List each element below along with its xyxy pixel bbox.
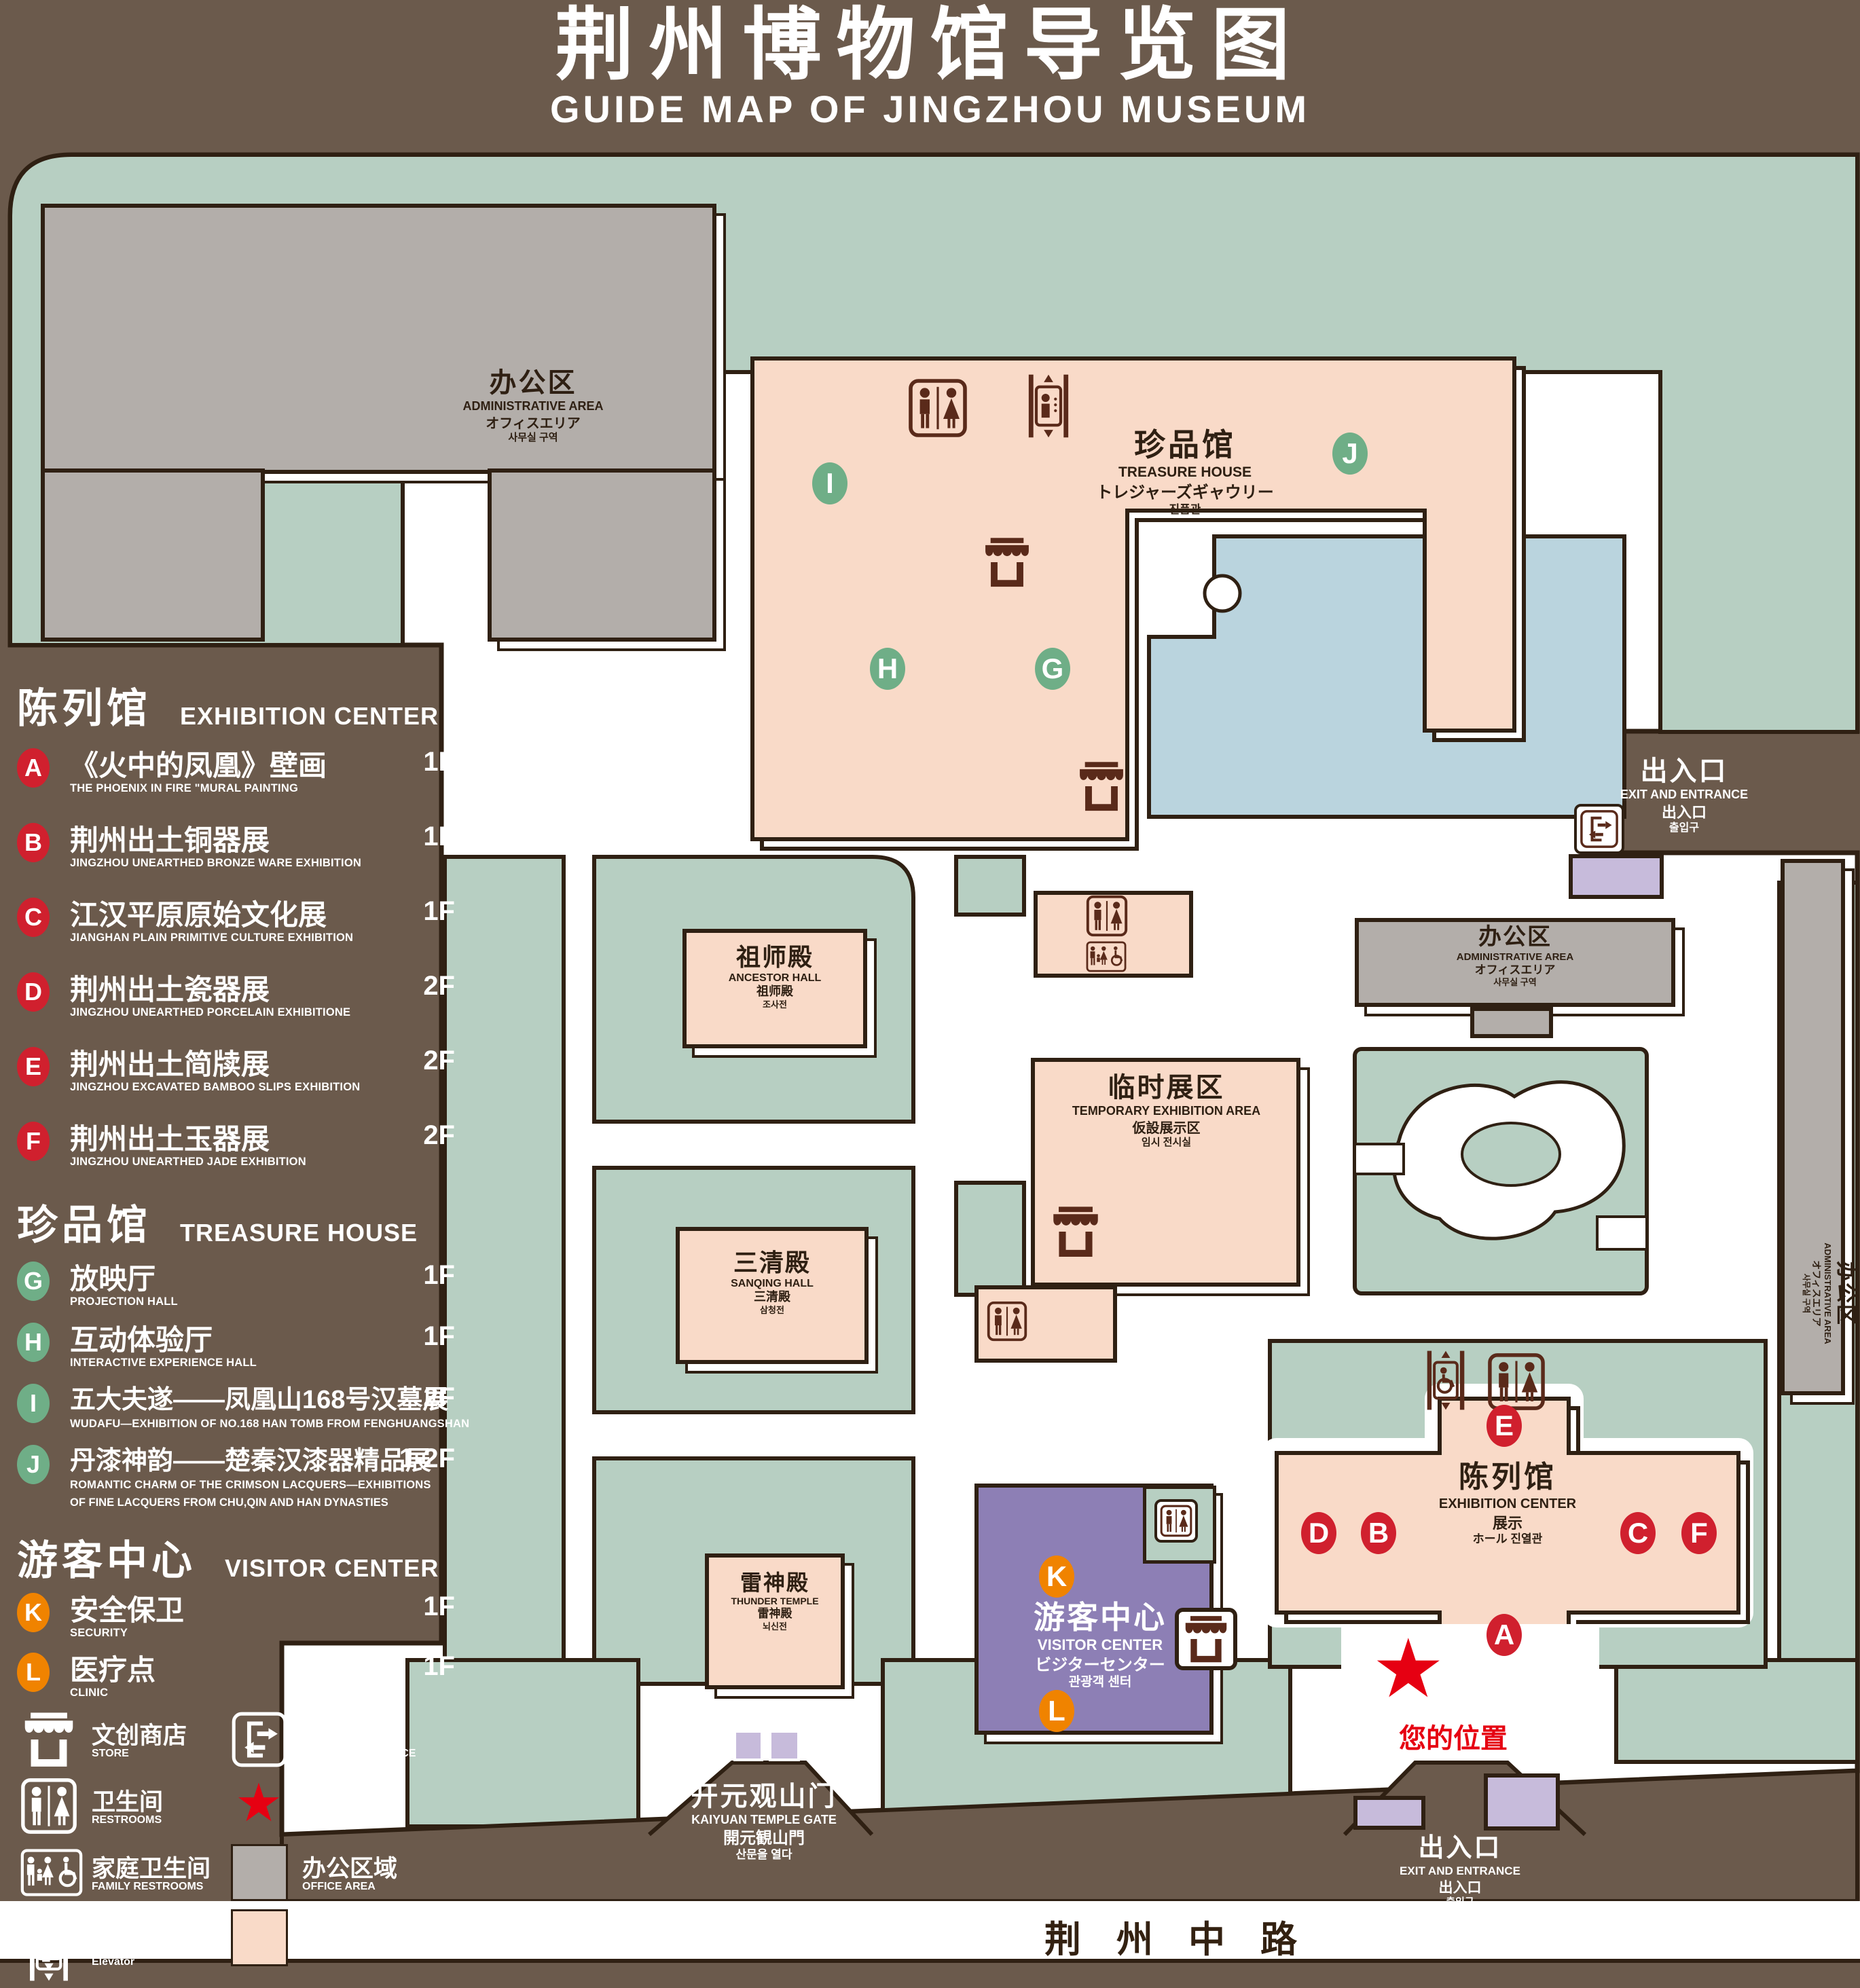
letter-badge: F [17, 1122, 50, 1161]
display-area-swatch [231, 1909, 288, 1966]
guide-map-poster: 荆州博物馆导览图 GUIDE MAP OF JINGZHOU MUSEUM 办公… [0, 0, 1860, 1988]
floor-label: 2F [370, 1120, 455, 1151]
label-admin-midright: 办公区 ADMINISTRATIVE AREA オフィスエリア 사무실 구역 [1355, 923, 1675, 988]
floor-label: 2F [370, 1382, 455, 1413]
letter-badge: D [17, 972, 50, 1012]
label-admin-topleft: 办公区 ADMINISTRATIVE AREA オフィスエリア 사무실 구역 [373, 367, 693, 444]
store-icon [1049, 1205, 1102, 1258]
exit-entrance-icon [1574, 804, 1624, 854]
letter-badge: E [17, 1047, 50, 1086]
building-purple-top [1569, 854, 1664, 899]
letter-badge: G [17, 1262, 50, 1301]
letter-badge: K [17, 1593, 50, 1632]
restroom-icon [1154, 1499, 1198, 1543]
building-gate-purple [769, 1730, 800, 1761]
legend-item-J: J 丹漆神韵——楚秦汉漆器精品展 ROMANTIC CHARM OF THE C… [17, 1443, 458, 1506]
floor-label: 1F [370, 822, 455, 852]
legend-item-L: L 医疗点 CLINIC 1F [17, 1651, 458, 1714]
label-exhibition-center: 陈列馆 EXHIBITION CENTER 展示 ホール 진열관 [1389, 1460, 1626, 1547]
your-location-star-icon: ★ [1372, 1628, 1445, 1710]
map-marker-I: I [812, 462, 847, 504]
store-icon [981, 536, 1033, 588]
map-marker-C: C [1620, 1512, 1656, 1554]
your-location-label: 您的位置 [1351, 1716, 1555, 1756]
your-location-star-icon: ★ [235, 1776, 282, 1829]
map-marker-D: D [1301, 1512, 1336, 1554]
legend-item-K: K 安全保卫 SECURITY 1F [17, 1591, 458, 1654]
letter-badge: A [17, 748, 50, 788]
family-restroom-icon [1084, 941, 1129, 972]
office-area-swatch [231, 1844, 288, 1901]
map-marker-J: J [1332, 432, 1368, 475]
accessible-elevator-icon [1425, 1350, 1467, 1411]
label-admin-farright: 办公区 ADMINISTRATIVE AREA オフィスエリア 사무실 구역 [1769, 1192, 1857, 1395]
label-treasure-house: 珍品馆 TREASURE HOUSE トレジャーズギャウリー 진품관 [998, 426, 1372, 517]
label-kaiyuan-gate: 开元观山门 KAIYUAN TEMPLE GATE 開元観山門 산문을 열다 [635, 1780, 893, 1862]
restroom-icon [1487, 1352, 1546, 1411]
legend-section-visitor-center: 游客中心VISITOR CENTER [17, 1528, 439, 1587]
building-admin-midright-tab [1470, 1007, 1553, 1038]
exit-entrance-icon [231, 1711, 288, 1768]
floor-label: 1F [370, 1260, 455, 1291]
map-marker-K: K [1039, 1556, 1074, 1598]
legend-item-H: H 互动体验厅 INTERACTIVE EXPERIENCE HALL 1F [17, 1321, 458, 1384]
building-purple-bottom [1484, 1773, 1560, 1830]
floor-label: 1F [370, 747, 455, 777]
map-marker-G: G [1035, 648, 1070, 690]
elevator-icon [1027, 373, 1070, 439]
floor-label: 1-2F [370, 1443, 455, 1474]
floor-label: 1F [370, 1321, 455, 1352]
floor-label: 2F [370, 1046, 455, 1076]
building-admin-topleft-wing [488, 468, 716, 642]
store-icon [20, 1711, 77, 1768]
legend-item-C: C 江汉平原原始文化展 JIANGHAN PLAIN PRIMITIVE CUL… [17, 896, 458, 959]
floor-label: 1F [370, 1591, 455, 1622]
store-icon [1182, 1615, 1230, 1663]
map-marker-L: L [1039, 1690, 1074, 1732]
legend-item-F: F 荆州出土玉器展 JINGZHOU UNEARTHED JADE EXHIBI… [17, 1120, 458, 1183]
restroom-icon [985, 1301, 1029, 1342]
building-admin-topleft-wing [41, 468, 265, 642]
page-title: 荆州博物馆导览图 [0, 4, 1860, 87]
map-marker-F: F [1681, 1512, 1717, 1554]
legend-item-A: A 《火中的凤凰》壁画 THE PHOENIX IN FIRE "MURAL P… [17, 747, 458, 809]
road-label: 荆州中路 [815, 1909, 1562, 1963]
floor-label: 1F [370, 1651, 455, 1682]
legend-item-I: I 五大夫遂——凤凰山168号汉墓展 WUDAFU—EXHIBITION OF … [17, 1382, 458, 1445]
label-visitor-center: 游客中心 VISITOR CENTER ビジターセンター 관광객 센터 [988, 1599, 1212, 1691]
letter-badge: C [17, 898, 50, 937]
elevator-icon [29, 1919, 69, 1982]
map-marker-A: A [1487, 1614, 1522, 1656]
label-thunder-temple: 雷神殿 THUNDER TEMPLE 雷神殿 뇌신전 [705, 1570, 845, 1632]
label-sanqing-hall: 三清殿 SANQING HALL 三清殿 삼청전 [676, 1248, 869, 1316]
label-ancestor-hall: 祖师殿 ANCESTOR HALL 祖师殿 조사전 [682, 942, 867, 1010]
legend-item-B: B 荆州出土铜器展 JINGZHOU UNEARTHED BRONZE WARE… [17, 822, 458, 884]
letter-badge: H [17, 1323, 50, 1362]
legend-section-exhibition-center: 陈列馆EXHIBITION CENTER [17, 676, 439, 735]
label-temporary-exhibition: 临时展区 TEMPORARY EXHIBITION AREA 仮設展示区 임시 … [1032, 1071, 1300, 1149]
family-restroom-icon [20, 1847, 83, 1898]
legend-item-D: D 荆州出土瓷器展 JINGZHOU UNEARTHED PORCELAIN E… [17, 971, 458, 1033]
page-subtitle: GUIDE MAP OF JINGZHOU MUSEUM [0, 87, 1860, 131]
legend-item-G: G 放映厅 PROJECTION HALL 1F [17, 1260, 458, 1323]
legend-section-treasure-house: 珍品馆TREASURE HOUSE [17, 1192, 418, 1251]
restroom-icon [1080, 895, 1134, 937]
letter-badge: J [17, 1445, 50, 1484]
map-marker-E: E [1487, 1405, 1522, 1447]
label-exit-top: 出入口 EXIT AND ENTRANCE 出入口 출입구 [1609, 755, 1759, 834]
map-marker-H: H [870, 648, 905, 690]
map-marker-B: B [1361, 1512, 1396, 1554]
restroom-icon [908, 378, 968, 439]
building-purple-bottom [1353, 1796, 1425, 1830]
floor-label: 2F [370, 971, 455, 1001]
legend-item-E: E 荆州出土简牍展 JINGZHOU EXCAVATED BAMBOO SLIP… [17, 1046, 458, 1108]
store-icon [1076, 760, 1127, 812]
letter-badge: L [17, 1653, 50, 1692]
letter-badge: B [17, 823, 50, 862]
restroom-icon [20, 1778, 77, 1835]
floor-label: 1F [370, 896, 455, 927]
building-gate-purple [733, 1730, 763, 1761]
label-exit-bottom: 出入口 EXIT AND ENTRANCE 出入口 출입구 [1385, 1833, 1535, 1909]
letter-badge: I [17, 1384, 50, 1423]
